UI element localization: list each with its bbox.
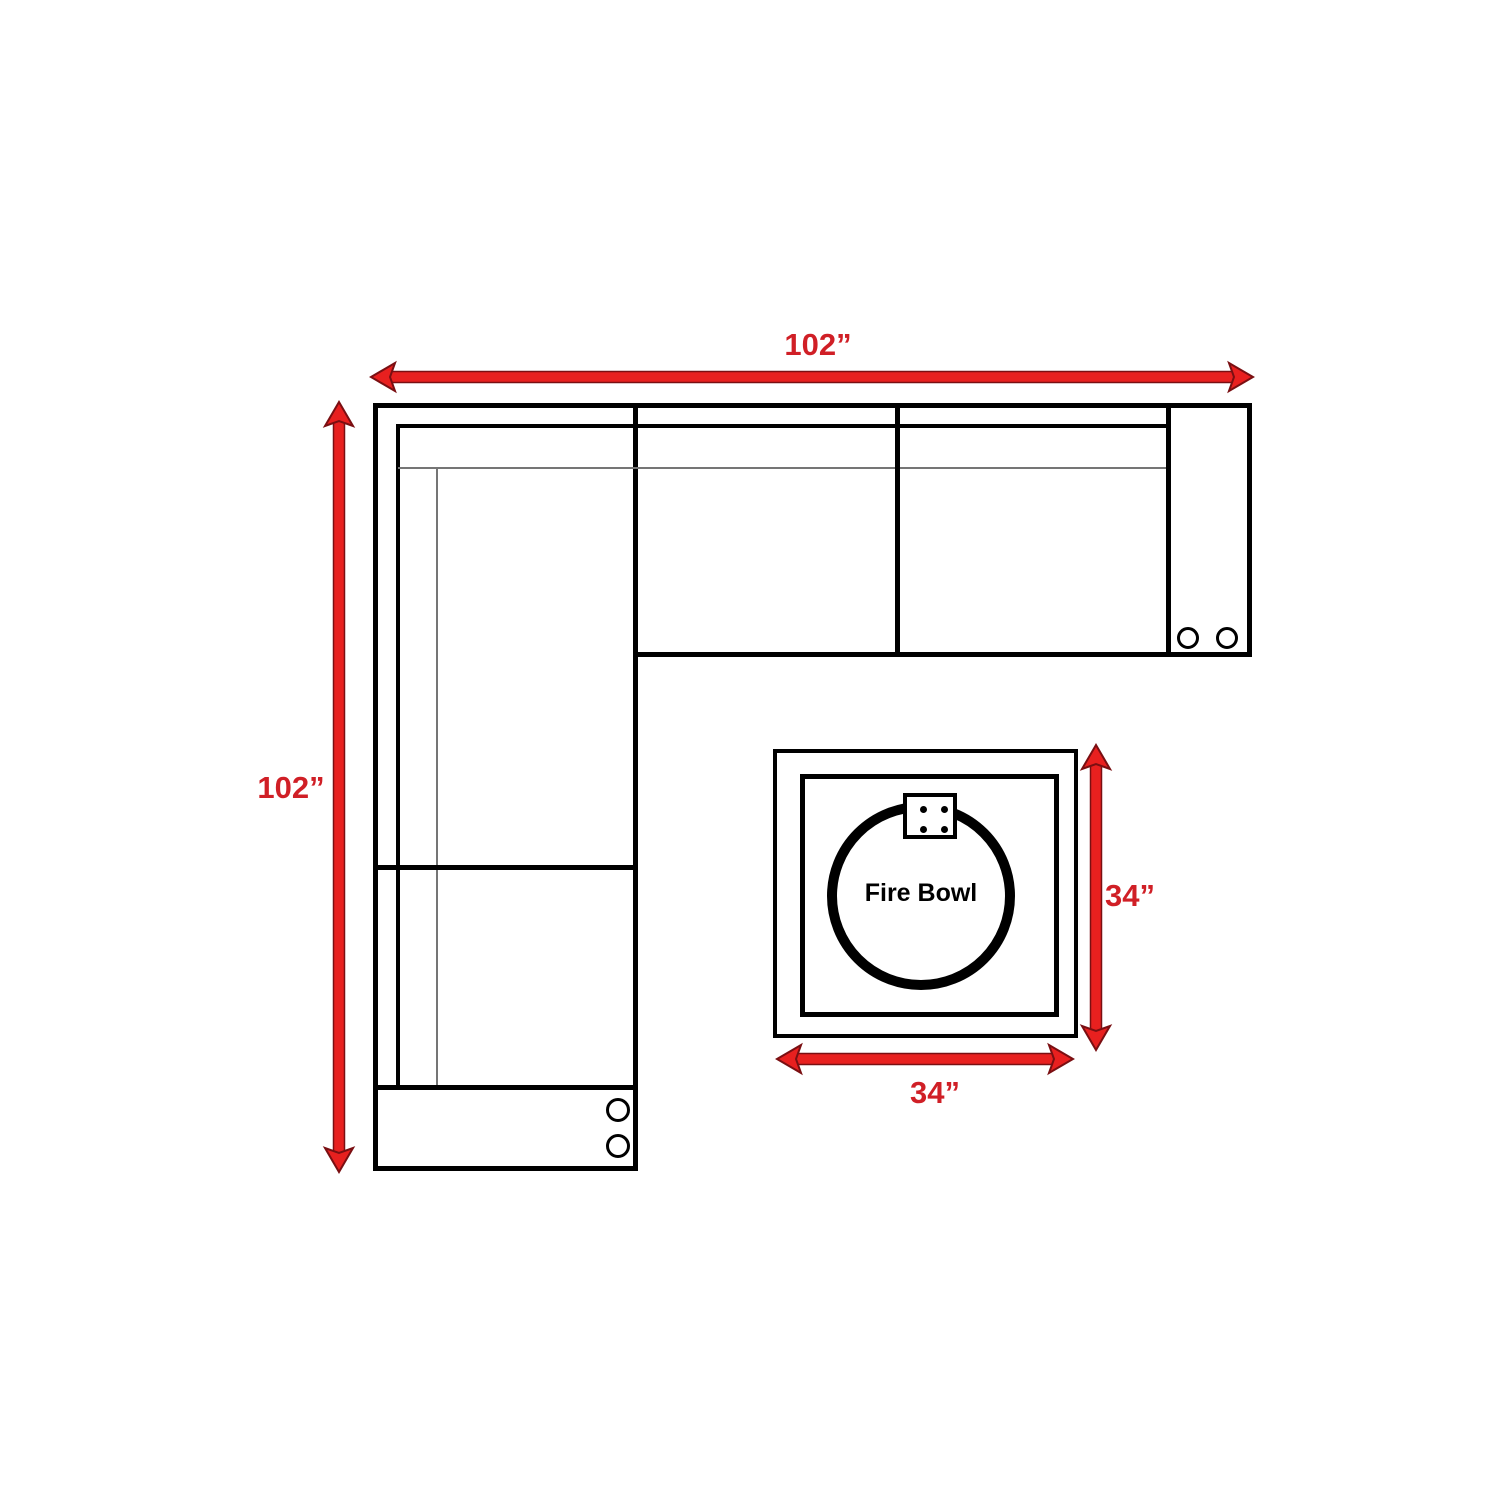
cup-holder-icon xyxy=(606,1098,630,1122)
seat-seam-line xyxy=(373,865,638,870)
cup-holder-icon xyxy=(606,1134,630,1158)
cup-holder-icon xyxy=(1177,627,1199,649)
right-arm-seam-line xyxy=(1166,403,1171,657)
burner-plate-icon xyxy=(903,793,957,839)
seat-seam-line xyxy=(895,403,900,657)
sofa-width-label: 102” xyxy=(743,328,893,362)
cup-holder-icon xyxy=(1216,627,1238,649)
backrest-line xyxy=(396,424,400,1088)
dimension-arrow-layer xyxy=(0,0,1500,1500)
seat-edge-line xyxy=(436,467,438,1087)
backrest-line xyxy=(398,424,1168,428)
fire-table-width-arrow xyxy=(777,1045,1073,1073)
bottom-arm-seam-line xyxy=(373,1085,638,1090)
fire-bowl-label: Fire Bowl xyxy=(821,878,1021,908)
sofa-width-arrow xyxy=(371,363,1253,391)
seat-edge-line xyxy=(398,467,1168,469)
sofa-height-label: 102” xyxy=(216,771,366,805)
fire-table-width-label: 34” xyxy=(875,1076,995,1110)
floor-plan-canvas: Fire Bowl 102” 102” 34” 34” xyxy=(0,0,1500,1500)
fire-table-height-label: 34” xyxy=(1070,879,1190,913)
sofa-left-section-outline xyxy=(373,403,638,1171)
